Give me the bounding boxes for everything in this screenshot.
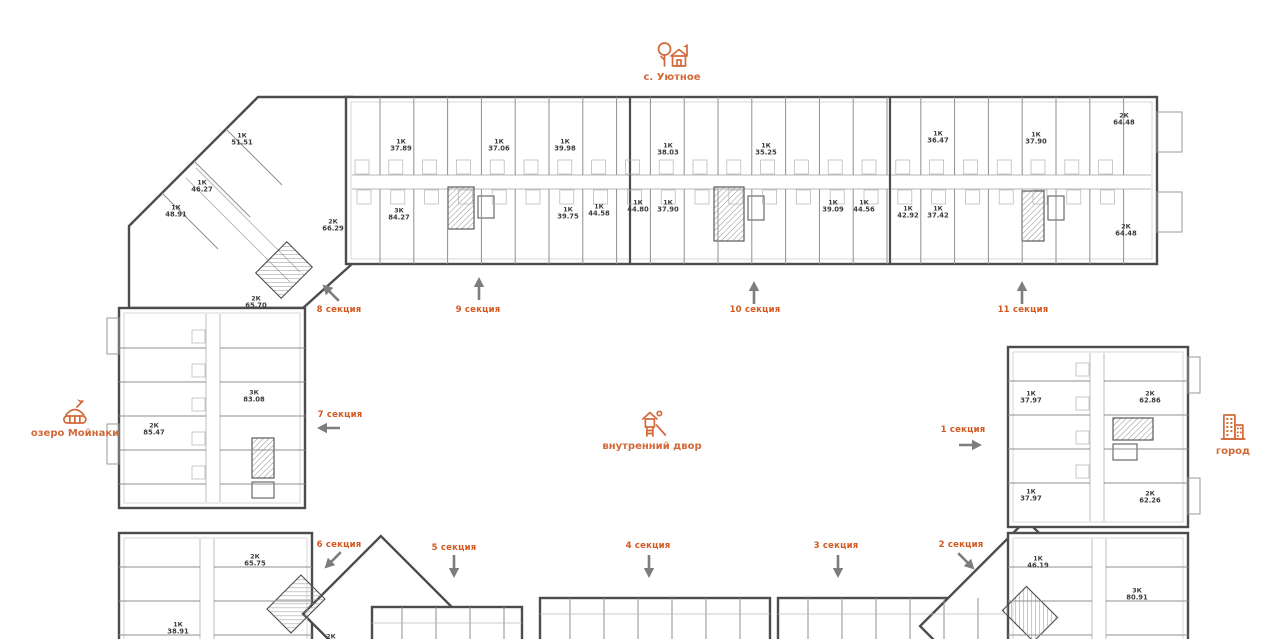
- apartment-label[interactable]: 2К62.86: [1139, 391, 1161, 406]
- apartment-area: 62.86: [1139, 398, 1161, 406]
- apartment-label[interactable]: 1К36.47: [927, 131, 949, 146]
- apartment-label[interactable]: 1К37.42: [927, 206, 949, 221]
- apartment-area: 36.47: [927, 138, 949, 146]
- apartment-label[interactable]: 1К42.92: [897, 206, 919, 221]
- apartment-label[interactable]: 1К44.58: [588, 204, 610, 219]
- landmark-label: с. Уютное: [644, 72, 701, 83]
- apartment-label[interactable]: 2К64.48: [1115, 224, 1137, 239]
- apartment-area: 80.91: [1126, 595, 1148, 603]
- apartment-area: 37.97: [1020, 398, 1042, 406]
- landmark-courtyard: внутренний двор: [602, 409, 701, 452]
- landmark-village: с. Уютное: [644, 40, 701, 83]
- apartment-label[interactable]: 2К: [326, 633, 336, 639]
- section-direction-arrow-icon: [1014, 280, 1030, 306]
- apartment-area: 48.91: [165, 212, 187, 220]
- apartment-area: 65.70: [245, 303, 267, 311]
- apartment-area: 44.56: [853, 207, 875, 215]
- apartment-label[interactable]: 1К37.89: [390, 139, 412, 154]
- apartment-area: 42.92: [897, 213, 919, 221]
- apartment-area: 64.48: [1113, 120, 1135, 128]
- apartment-area: 46.19: [1027, 563, 1049, 571]
- apartment-area: 37.90: [657, 207, 679, 215]
- landmark-lake: озеро Мойнаки: [31, 398, 119, 439]
- apartment-area: 39.09: [822, 207, 844, 215]
- landmark-label: город: [1216, 446, 1250, 457]
- apartment-label[interactable]: 1К37.97: [1020, 391, 1042, 406]
- section-marker-4[interactable]: 4 секция: [626, 541, 671, 551]
- apartment-label[interactable]: 1К37.90: [1025, 132, 1047, 147]
- apartment-label[interactable]: 3К80.91: [1126, 588, 1148, 603]
- apartment-area: 83.08: [243, 397, 265, 405]
- section-direction-arrow-icon: [316, 420, 342, 436]
- apartment-area: 85.47: [143, 430, 165, 438]
- apartment-label[interactable]: 2К65.75: [244, 554, 266, 569]
- apartment-area: 37.06: [488, 146, 510, 154]
- apartment-label[interactable]: 1К37.06: [488, 139, 510, 154]
- city-buildings-icon: [1219, 412, 1247, 444]
- section-marker-3[interactable]: 3 секция: [814, 541, 859, 551]
- apartment-label[interactable]: 1К51.51: [231, 133, 253, 148]
- apartment-area: 37.97: [1020, 496, 1042, 504]
- apartment-label[interactable]: 2К62.26: [1139, 491, 1161, 506]
- apartment-label[interactable]: 2К65.70: [245, 296, 267, 311]
- apartment-label[interactable]: 3К84.27: [388, 208, 410, 223]
- apartment-label[interactable]: 3К83.08: [243, 390, 265, 405]
- apartment-area: 51.51: [231, 140, 253, 148]
- apartment-area: 39.75: [557, 214, 579, 222]
- apartment-label[interactable]: 1К37.90: [657, 200, 679, 215]
- apartment-area: 38.03: [657, 150, 679, 158]
- section-direction-arrow-icon: [957, 437, 983, 453]
- apartment-area: 37.89: [390, 146, 412, 154]
- section-marker-5[interactable]: 5 секция: [432, 543, 477, 553]
- apartment-area: 44.58: [588, 211, 610, 219]
- apartment-type: 2К: [326, 633, 336, 639]
- apartment-area: 35.25: [755, 150, 777, 158]
- apartment-area: 65.75: [244, 561, 266, 569]
- apartment-area: 39.98: [554, 146, 576, 154]
- section-marker-7[interactable]: 7 секция: [318, 410, 363, 420]
- apartment-label[interactable]: 1К44.80: [627, 200, 649, 215]
- section-direction-arrow-icon: [471, 276, 487, 302]
- apartment-label[interactable]: 1К39.09: [822, 200, 844, 215]
- apartment-area: 66.29: [322, 226, 344, 234]
- apartment-area: 64.48: [1115, 231, 1137, 239]
- apartment-area: 38.91: [167, 629, 189, 637]
- apartment-label[interactable]: 1К37.97: [1020, 489, 1042, 504]
- apartment-label[interactable]: 1К39.98: [554, 139, 576, 154]
- apartment-label[interactable]: 1К44.56: [853, 200, 875, 215]
- apartment-area: 62.26: [1139, 498, 1161, 506]
- apartment-label[interactable]: 1К46.19: [1027, 556, 1049, 571]
- landmark-label: озеро Мойнаки: [31, 428, 119, 439]
- apartment-label[interactable]: 1К39.75: [557, 207, 579, 222]
- section-marker-10[interactable]: 10 секция: [730, 305, 781, 315]
- apartment-label[interactable]: 1К38.03: [657, 143, 679, 158]
- apartment-label[interactable]: 1К35.25: [755, 143, 777, 158]
- apartment-label[interactable]: 2К64.48: [1113, 113, 1135, 128]
- apartment-label[interactable]: 1К48.91: [165, 205, 187, 220]
- section-marker-9[interactable]: 9 секция: [456, 305, 501, 315]
- section-direction-arrow-icon: [641, 553, 657, 579]
- apartment-label[interactable]: 1К46.27: [191, 180, 213, 195]
- apartment-area: 44.80: [627, 207, 649, 215]
- apartment-area: 37.42: [927, 213, 949, 221]
- tree-house-icon: [655, 40, 689, 70]
- landmark-label: внутренний двор: [602, 441, 701, 452]
- section-direction-arrow-icon: [746, 280, 762, 306]
- beach-umbrella-icon: [58, 398, 92, 426]
- floor-plan-canvas: с. Уютноеозеро Мойнакивнутренний дворгор…: [0, 0, 1280, 639]
- playground-icon: [636, 409, 668, 439]
- section-marker-8[interactable]: 8 секция: [317, 305, 362, 315]
- section-marker-11[interactable]: 11 секция: [998, 305, 1049, 315]
- apartment-area: 84.27: [388, 215, 410, 223]
- landmark-city: город: [1216, 412, 1250, 457]
- apartment-area: 37.90: [1025, 139, 1047, 147]
- apartment-label[interactable]: 2К66.29: [322, 219, 344, 234]
- apartment-label[interactable]: 1К38.91: [167, 622, 189, 637]
- section-direction-arrow-icon: [830, 553, 846, 579]
- apartment-label[interactable]: 2К85.47: [143, 423, 165, 438]
- section-marker-1[interactable]: 1 секция: [941, 425, 986, 435]
- section-direction-arrow-icon: [446, 553, 462, 579]
- apartment-area: 46.27: [191, 187, 213, 195]
